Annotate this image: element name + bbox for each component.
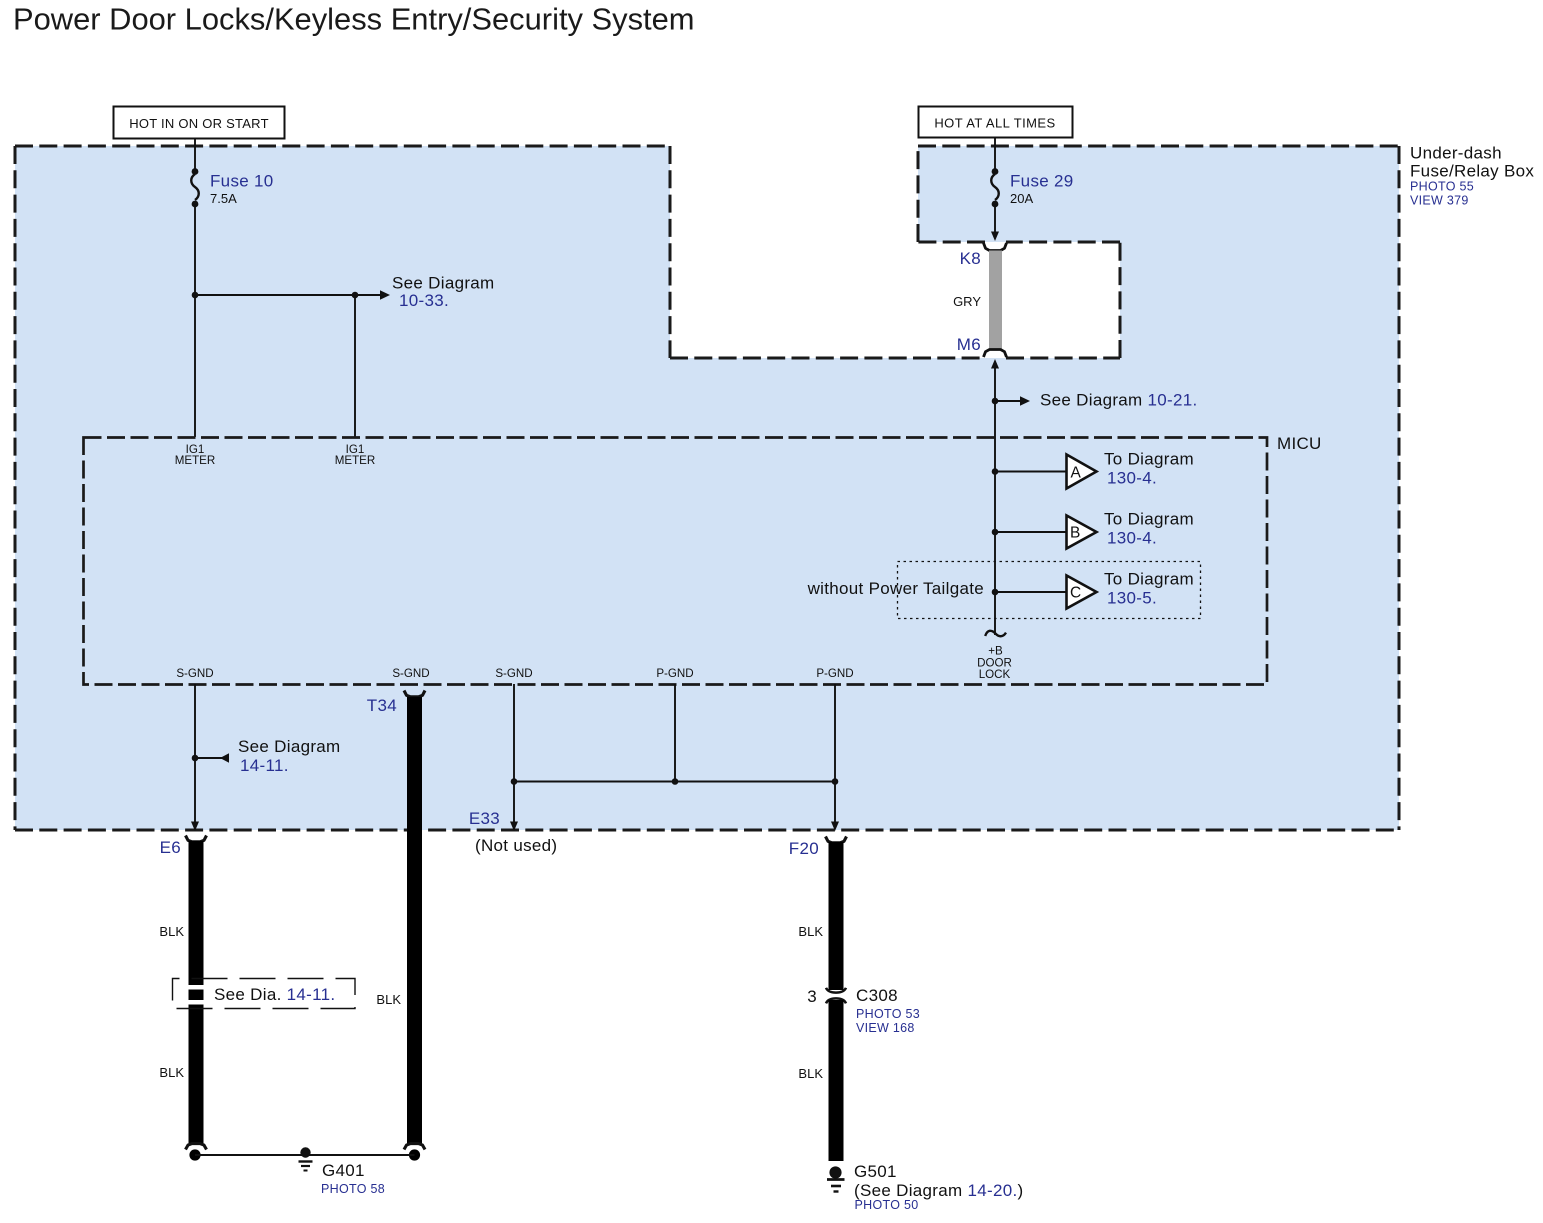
svg-text:Fuse 10: Fuse 10	[210, 172, 274, 191]
svg-text:14-11.: 14-11.	[240, 756, 289, 775]
svg-text:S-GND: S-GND	[176, 667, 213, 680]
svg-text:HOT IN ON OR START: HOT IN ON OR START	[129, 116, 269, 131]
svg-text:P-GND: P-GND	[656, 667, 693, 680]
svg-text:F20: F20	[789, 839, 819, 858]
svg-text:VIEW 168: VIEW 168	[856, 1021, 915, 1035]
svg-text:BLK: BLK	[798, 924, 823, 939]
svg-text:A: A	[1071, 465, 1082, 482]
svg-text:S-GND: S-GND	[392, 667, 429, 680]
svg-text:See Dia. 14-11.: See Dia. 14-11.	[214, 985, 335, 1004]
svg-text:VIEW 379: VIEW 379	[1410, 194, 1469, 208]
svg-text:PHOTO 50: PHOTO 50	[855, 1198, 919, 1212]
svg-text:T34: T34	[367, 696, 397, 715]
svg-text:10-33.: 10-33.	[399, 291, 449, 310]
svg-text:MICU: MICU	[1277, 434, 1322, 453]
svg-text:130-4.: 130-4.	[1107, 469, 1157, 488]
svg-text:7.5A: 7.5A	[210, 191, 237, 206]
svg-text:See Diagram: See Diagram	[392, 274, 495, 293]
svg-text:LOCK: LOCK	[979, 668, 1011, 681]
svg-text:PHOTO 53: PHOTO 53	[856, 1007, 920, 1021]
svg-text:METER: METER	[175, 454, 216, 467]
svg-text:PHOTO 55: PHOTO 55	[1410, 180, 1474, 194]
svg-text:Fuse 29: Fuse 29	[1010, 172, 1074, 191]
svg-text:Power Door Locks/Keyless Entry: Power Door Locks/Keyless Entry/Security …	[13, 2, 695, 37]
svg-text:P-GND: P-GND	[816, 667, 853, 680]
svg-text:BLK: BLK	[376, 992, 401, 1007]
svg-text:To Diagram: To Diagram	[1104, 570, 1194, 589]
svg-text:BLK: BLK	[798, 1066, 823, 1081]
svg-text:K8: K8	[960, 249, 981, 268]
svg-text:BLK: BLK	[159, 924, 184, 939]
svg-text:C308: C308	[856, 986, 898, 1005]
svg-text:130-4.: 130-4.	[1107, 529, 1157, 548]
svg-text:GRY: GRY	[953, 294, 981, 309]
svg-text:PHOTO 58: PHOTO 58	[321, 1182, 385, 1196]
svg-text:S-GND: S-GND	[495, 667, 532, 680]
svg-text:without Power Tailgate: without Power Tailgate	[807, 579, 984, 598]
svg-text:To Diagram: To Diagram	[1104, 450, 1194, 469]
svg-text:B: B	[1070, 525, 1080, 542]
svg-text:G401: G401	[322, 1161, 365, 1180]
svg-text:C: C	[1070, 585, 1081, 602]
svg-text:M6: M6	[957, 335, 981, 354]
svg-text:METER: METER	[335, 454, 376, 467]
svg-text:G501: G501	[854, 1162, 897, 1181]
svg-text:BLK: BLK	[159, 1065, 184, 1080]
svg-text:HOT AT ALL TIMES: HOT AT ALL TIMES	[934, 116, 1055, 131]
svg-text:3: 3	[807, 987, 817, 1006]
svg-text:20A: 20A	[1010, 191, 1033, 206]
svg-text:Fuse/Relay Box: Fuse/Relay Box	[1410, 162, 1534, 181]
svg-text:Under-dash: Under-dash	[1410, 144, 1502, 163]
svg-text:E6: E6	[160, 838, 181, 857]
svg-text:See Diagram 10-21.: See Diagram 10-21.	[1040, 391, 1198, 410]
svg-text:To Diagram: To Diagram	[1104, 510, 1194, 529]
svg-text:(Not used): (Not used)	[475, 836, 557, 855]
svg-text:130-5.: 130-5.	[1107, 589, 1157, 608]
svg-text:See Diagram: See Diagram	[238, 737, 341, 756]
svg-text:E33: E33	[469, 809, 500, 828]
